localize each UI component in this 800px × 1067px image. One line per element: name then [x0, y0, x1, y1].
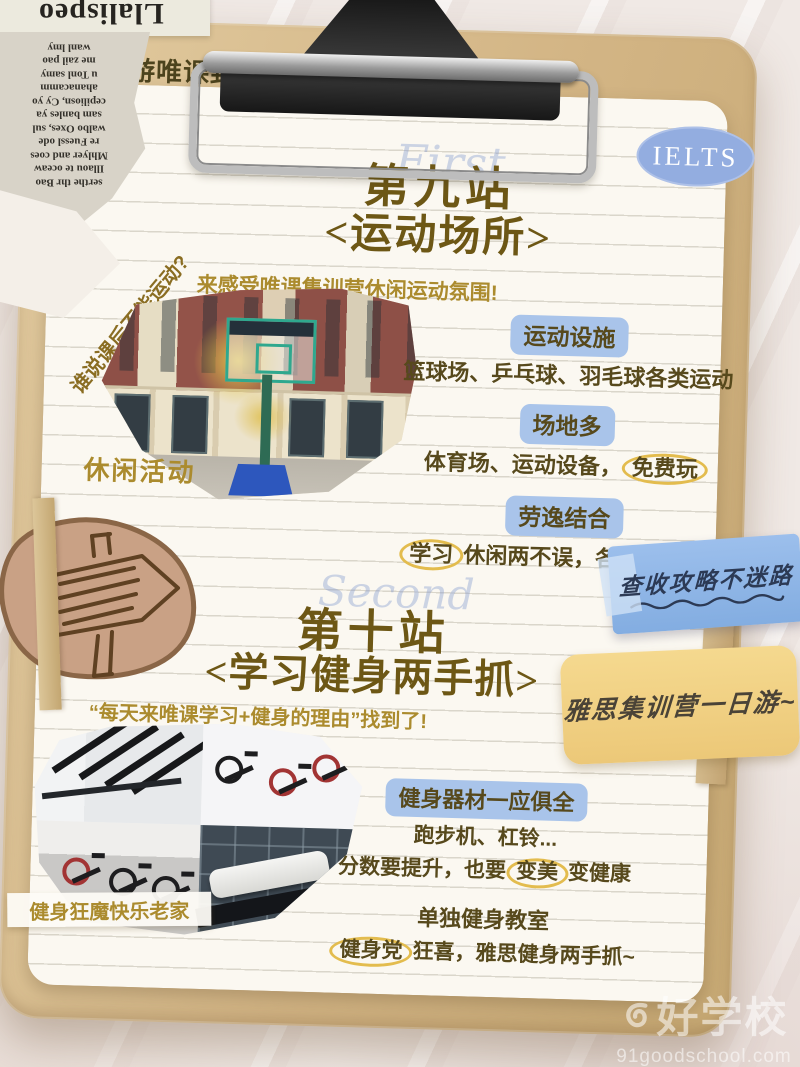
feature-heading: 单独健身教室: [315, 898, 652, 939]
ielts-badge: IELTS: [636, 125, 756, 188]
feature-item: 运动设施 篮球场、乒乓球、羽毛球各类运动: [392, 311, 746, 394]
ielts-badge-label: IELTS: [652, 140, 739, 173]
newspaper-scrap: Llalispeo serthe thr BaoIllaou te oceaw …: [0, 0, 210, 270]
section2-text-column: 健身器材一应俱全 跑步机、杠铃... 分数要提升，也要变美变健康 单独健身教室 …: [313, 776, 655, 990]
feature-heading: 劳逸结合: [505, 495, 624, 538]
watermark-domain: 91goodschool.com: [608, 1046, 800, 1067]
section1-photo-caption: 休闲活动: [83, 450, 196, 490]
watermark: 好学校 91goodschool.com: [608, 984, 800, 1067]
feature-heading: 运动设施: [510, 314, 629, 357]
feature-heading: 健身器材一应俱全: [385, 778, 588, 822]
blue-sticky-note: 查收攻略不迷路: [607, 533, 800, 634]
feature-detail: 篮球场、乒乓球、羽毛球各类运动: [392, 357, 745, 394]
feature-detail: 体育场、运动设备，免费玩: [389, 446, 742, 487]
gym-treadmills-panel: [34, 718, 204, 824]
yellow-note-text: 雅思集训营一日游~: [563, 682, 798, 728]
feature-item: 场地多 体育场、运动设备，免费玩: [389, 400, 743, 487]
cardboard-sign: [0, 498, 208, 710]
watermark-logo-icon: [619, 998, 653, 1032]
feature-heading: 场地多: [519, 403, 615, 446]
feature-item: 单独健身教室 健身党狂喜，雅思健身两手抓~: [314, 898, 652, 975]
poster: #云游唯课封闭班 IELTS First 第九站 <运动场所> 来感受唯课集训营…: [0, 0, 800, 1067]
arrow-sign-icon: [0, 498, 208, 710]
newspaper-headline: Llalispeo: [38, 0, 164, 30]
feature-item: 健身器材一应俱全 跑步机、杠铃... 分数要提升，也要变美变健康: [316, 776, 655, 892]
section2-photo-caption: 健身狂魔快乐老家: [7, 892, 211, 927]
section1-subtitle: <运动场所>: [198, 195, 680, 269]
clipboard-clip: [179, 0, 603, 158]
yellow-sticky-note: 雅思集训营一日游~: [560, 645, 800, 765]
newspaper-text: serthe thr BaoIllaou te oceaw Mhlyer and…: [0, 40, 140, 189]
watermark-brand: 好学校: [656, 984, 788, 1045]
basketball-hoop-base: [228, 463, 294, 497]
